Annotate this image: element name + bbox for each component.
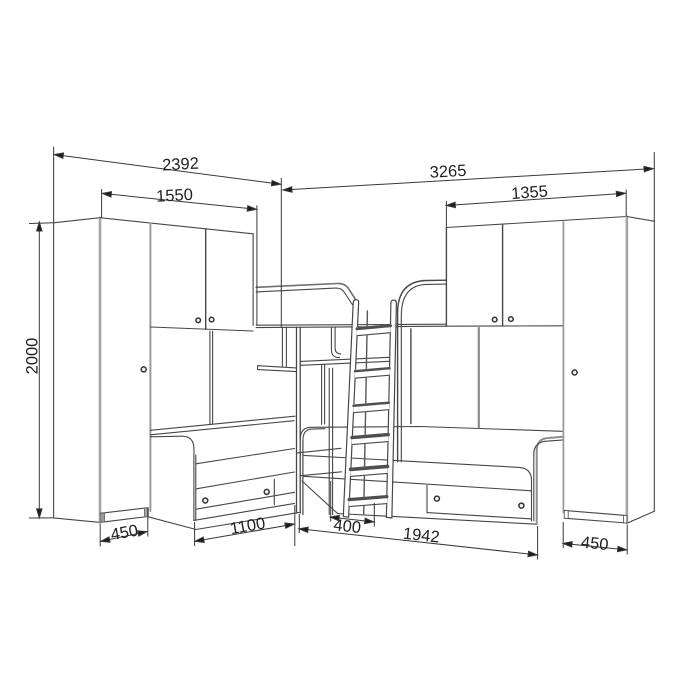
svg-text:2000: 2000 [23,338,41,375]
svg-text:450: 450 [580,533,609,554]
svg-text:3265: 3265 [429,162,467,182]
svg-text:2392: 2392 [162,155,200,175]
svg-text:400: 400 [333,516,362,537]
svg-text:1355: 1355 [511,183,549,204]
svg-text:1550: 1550 [156,186,194,206]
